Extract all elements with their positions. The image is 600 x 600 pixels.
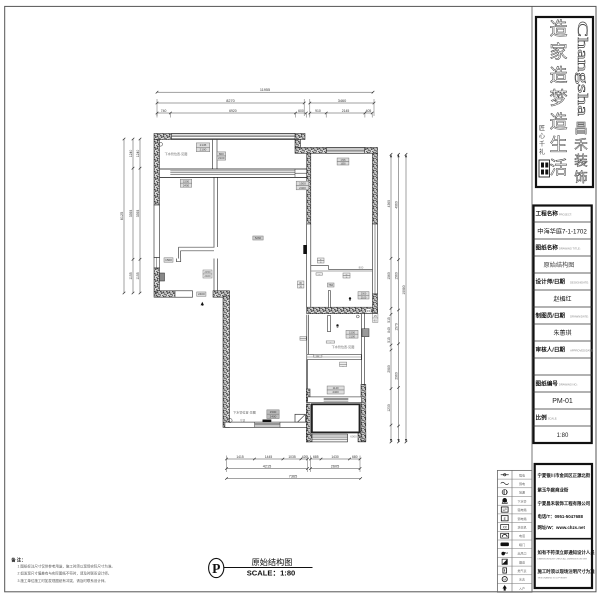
svg-text:DIMENSION MUST CHECK ALL DIMEN: DIMENSION MUST CHECK ALL DIMENSION ON SI… xyxy=(538,558,588,561)
svg-text:1035: 1035 xyxy=(288,455,296,459)
svg-text:下水管: 下水管 xyxy=(517,498,526,503)
svg-text:强电箱: 强电箱 xyxy=(517,507,526,512)
svg-text:强电: 强电 xyxy=(519,472,525,477)
svg-text:暗门: 暗门 xyxy=(519,542,525,547)
svg-text:4060: 4060 xyxy=(394,201,398,209)
svg-text:5260: 5260 xyxy=(255,236,262,240)
svg-text:下水管位置-见图: 下水管位置-见图 xyxy=(233,409,256,414)
svg-text:2100: 2100 xyxy=(200,148,207,152)
svg-text:DRAWING TITLE:: DRAWING TITLE: xyxy=(559,247,581,251)
svg-text:4360: 4360 xyxy=(387,200,391,208)
svg-text:原始结构图: 原始结构图 xyxy=(544,261,575,269)
svg-text:工程名称: 工程名称 xyxy=(536,210,559,218)
svg-text:1500: 1500 xyxy=(349,330,355,334)
svg-text:1 图纸标注尺寸仅供参考用途，施工时须以现场实际尺寸为准。: 1 图纸标注尺寸仅供参考用途，施工时须以现场实际尺寸为准。 xyxy=(18,563,115,568)
svg-text:2145: 2145 xyxy=(200,143,207,147)
svg-text:4215: 4215 xyxy=(263,464,271,468)
svg-text:3 施工单位施工时如发现图纸有冲突，请及时联系设计师。: 3 施工单位施工时如发现图纸有冲突，请及时联系设计师。 xyxy=(18,578,108,583)
svg-text:PROJECT:: PROJECT: xyxy=(559,213,572,217)
svg-text:800: 800 xyxy=(316,356,319,358)
svg-text:2100: 2100 xyxy=(349,334,355,338)
svg-text:11955: 11955 xyxy=(260,88,270,92)
svg-text:26: 26 xyxy=(320,262,322,264)
svg-text:1230: 1230 xyxy=(387,404,391,412)
svg-text:910: 910 xyxy=(315,109,321,113)
svg-text:680: 680 xyxy=(352,455,358,459)
svg-text:审核人/日期: 审核人/日期 xyxy=(536,346,566,354)
svg-text:备 注：: 备 注： xyxy=(10,556,25,563)
svg-text:Changsha: Changsha xyxy=(574,21,590,117)
svg-text:宁夏银川市金凤区正源北街: 宁夏银川市金凤区正源北街 xyxy=(538,472,591,479)
svg-text:烟道: 烟道 xyxy=(519,559,525,564)
svg-text:比例: 比例 xyxy=(536,414,548,422)
svg-text:1155: 1155 xyxy=(136,272,140,279)
svg-text:760: 760 xyxy=(328,283,333,287)
svg-text:朱蕙琪: 朱蕙琪 xyxy=(553,329,571,337)
svg-text:15: 15 xyxy=(367,309,371,313)
svg-text:生: 生 xyxy=(550,135,568,155)
svg-text:APPROVED/DATE:: APPROVED/DATE: xyxy=(570,349,594,353)
svg-text:740: 740 xyxy=(161,109,167,113)
svg-text:3393: 3393 xyxy=(129,210,133,218)
svg-text:造: 造 xyxy=(550,112,568,132)
svg-text:B2: B2 xyxy=(504,551,508,555)
svg-text:宁夏昌禾装饰工程有限公司: 宁夏昌禾装饰工程有限公司 xyxy=(538,500,591,507)
svg-text:3393: 3393 xyxy=(136,210,140,218)
svg-text:赵楣红: 赵楣红 xyxy=(553,295,571,303)
svg-text:空调: 空调 xyxy=(240,419,246,423)
svg-text:405: 405 xyxy=(366,109,372,113)
svg-text:紫玉华庭商业街: 紫玉华庭商业街 xyxy=(538,487,569,494)
svg-text:DRAWN/DATE:: DRAWN/DATE: xyxy=(570,315,589,319)
svg-text:1560: 1560 xyxy=(394,272,398,280)
svg-text:2400: 2400 xyxy=(299,186,306,190)
svg-text:造: 造 xyxy=(550,19,568,39)
svg-text:下水管位置-见图: 下水管位置-见图 xyxy=(165,151,188,156)
svg-text:2100: 2100 xyxy=(218,156,225,160)
svg-text:8270: 8270 xyxy=(226,99,234,103)
svg-text:1240: 1240 xyxy=(136,150,140,158)
svg-text:10980: 10980 xyxy=(402,285,406,294)
svg-text:千: 千 xyxy=(539,140,545,148)
svg-text:DRAWING NO.:: DRAWING NO.: xyxy=(559,383,578,387)
svg-text:420: 420 xyxy=(302,455,308,459)
svg-text:图纸编号: 图纸编号 xyxy=(536,380,559,388)
svg-text:6000: 6000 xyxy=(350,434,357,438)
svg-text:685: 685 xyxy=(313,455,319,459)
svg-text:THIS DRAWING IS COPYRIGHT: THIS DRAWING IS COPYRIGHT xyxy=(538,576,568,579)
svg-text:礼: 礼 xyxy=(539,148,545,156)
svg-text:2400: 2400 xyxy=(198,292,205,296)
svg-text:2100: 2100 xyxy=(361,296,367,299)
svg-text:1430: 1430 xyxy=(331,455,339,459)
svg-text:地漏: 地漏 xyxy=(519,490,525,495)
svg-text:燃气表: 燃气表 xyxy=(517,568,526,573)
svg-text:洗衣机: 洗衣机 xyxy=(517,525,526,530)
svg-text:1155: 1155 xyxy=(129,272,133,279)
svg-text:制图员/日期: 制图员/日期 xyxy=(536,312,566,320)
svg-text:电话/T：0951-5047688: 电话/T：0951-5047688 xyxy=(538,513,584,520)
svg-text:3460: 3460 xyxy=(338,99,346,103)
svg-text:2145: 2145 xyxy=(342,109,350,113)
svg-text:LP: LP xyxy=(503,508,508,512)
svg-text:中海华庭7-1-1702: 中海华庭7-1-1702 xyxy=(537,228,587,236)
svg-text:2400: 2400 xyxy=(204,274,211,278)
svg-text:活: 活 xyxy=(550,158,568,178)
svg-text:2605: 2605 xyxy=(331,464,339,468)
svg-text:515: 515 xyxy=(387,337,391,343)
svg-text:造: 造 xyxy=(550,65,568,85)
svg-text:弱电箱: 弱电箱 xyxy=(517,516,526,521)
svg-text:515: 515 xyxy=(387,317,391,323)
svg-text:6125: 6125 xyxy=(120,212,124,220)
svg-text:750: 750 xyxy=(318,274,320,276)
svg-text:SCALE:: SCALE: xyxy=(548,417,558,421)
svg-text:2 如发现尺寸偏差有与实际图纸不符时，请及时联系设计师。: 2 如发现尺寸偏差有与实际图纸不符时，请及时联系设计师。 xyxy=(18,571,112,576)
svg-text:1560: 1560 xyxy=(387,272,391,280)
svg-text:网址/W：www.chzs.net: 网址/W：www.chzs.net xyxy=(538,524,586,531)
svg-text:心: 心 xyxy=(539,133,545,140)
svg-text:2400: 2400 xyxy=(332,390,339,394)
svg-text:装: 装 xyxy=(574,154,588,169)
svg-text:弱电: 弱电 xyxy=(519,481,525,486)
svg-text:1240: 1240 xyxy=(129,150,133,158)
svg-text:1690: 1690 xyxy=(340,163,346,165)
svg-text:80: 80 xyxy=(374,318,378,322)
svg-text:下水管位置-见图: 下水管位置-见图 xyxy=(332,344,355,349)
svg-text:2980: 2980 xyxy=(387,365,391,373)
svg-text:昌: 昌 xyxy=(574,121,588,136)
svg-text:600: 600 xyxy=(298,109,304,113)
svg-text:出风口: 出风口 xyxy=(517,551,526,556)
svg-text:PM-01: PM-01 xyxy=(552,398,573,405)
svg-text:饰: 饰 xyxy=(574,170,588,185)
svg-text:2400: 2400 xyxy=(270,414,277,418)
svg-text:梦: 梦 xyxy=(550,89,568,109)
svg-text:禾: 禾 xyxy=(574,137,588,152)
svg-text:入户: 入户 xyxy=(519,585,525,590)
svg-text:2400: 2400 xyxy=(183,183,190,187)
svg-text:家: 家 xyxy=(550,42,568,62)
svg-text:施工时须以现场注明尺寸为准: 施工时须以现场注明尺寸为准 xyxy=(538,568,596,575)
svg-text:原始结构图: 原始结构图 xyxy=(252,557,293,567)
svg-text:设计师/日期: 设计师/日期 xyxy=(536,278,566,286)
svg-text:6920: 6920 xyxy=(229,109,237,113)
svg-text:1445: 1445 xyxy=(265,455,273,459)
svg-text:匠: 匠 xyxy=(539,125,545,132)
svg-text:1570: 1570 xyxy=(394,323,398,331)
svg-text:水表: 水表 xyxy=(519,577,525,582)
svg-text:1:80: 1:80 xyxy=(557,433,569,439)
svg-text:电话: 电话 xyxy=(519,533,525,538)
svg-text:1500: 1500 xyxy=(165,258,172,262)
svg-text:DESIGN/DATE:: DESIGN/DATE: xyxy=(570,281,589,285)
svg-text:7365: 7365 xyxy=(289,474,297,478)
svg-text:SCALE：1:80: SCALE：1:80 xyxy=(247,569,296,578)
svg-text:图纸名称: 图纸名称 xyxy=(536,244,559,252)
svg-text:如有不符须立即通知设计人员: 如有不符须立即通知设计人员 xyxy=(538,549,596,556)
svg-text:1415: 1415 xyxy=(236,455,244,459)
svg-text:P: P xyxy=(212,561,220,576)
svg-text:840: 840 xyxy=(387,327,391,333)
svg-text:800: 800 xyxy=(359,265,364,269)
svg-text:2960: 2960 xyxy=(394,372,398,380)
